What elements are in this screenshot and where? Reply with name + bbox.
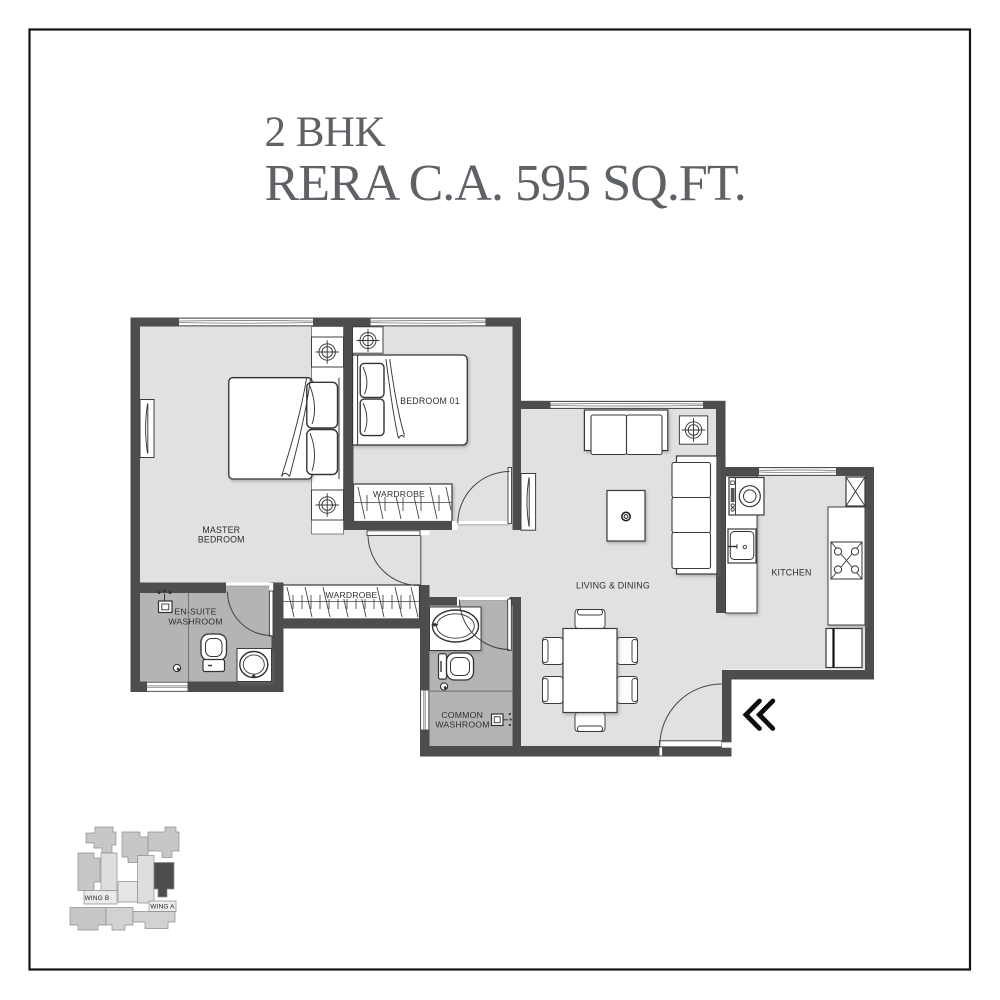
svg-text:WASHROOM: WASHROOM bbox=[168, 616, 222, 626]
svg-text:2 BHK: 2 BHK bbox=[265, 109, 386, 156]
svg-text:WARDROBE: WARDROBE bbox=[326, 590, 378, 600]
svg-text:WASHROOM: WASHROOM bbox=[435, 720, 489, 730]
svg-text:EN-SUITE: EN-SUITE bbox=[174, 606, 216, 616]
svg-text:RERA C.A. 595 SQ.FT.: RERA C.A. 595 SQ.FT. bbox=[265, 155, 746, 212]
svg-text:BEDROOM 01: BEDROOM 01 bbox=[400, 396, 460, 406]
svg-text:LIVING & DINING: LIVING & DINING bbox=[576, 581, 650, 591]
svg-text:KITCHEN: KITCHEN bbox=[771, 568, 811, 578]
svg-text:BEDROOM: BEDROOM bbox=[198, 535, 245, 545]
svg-text:WING B: WING B bbox=[85, 895, 110, 902]
svg-text:WARDROBE: WARDROBE bbox=[373, 489, 425, 499]
svg-text:WING A: WING A bbox=[150, 904, 175, 911]
svg-text:COMMON: COMMON bbox=[441, 710, 483, 720]
svg-text:MASTER: MASTER bbox=[202, 525, 240, 535]
